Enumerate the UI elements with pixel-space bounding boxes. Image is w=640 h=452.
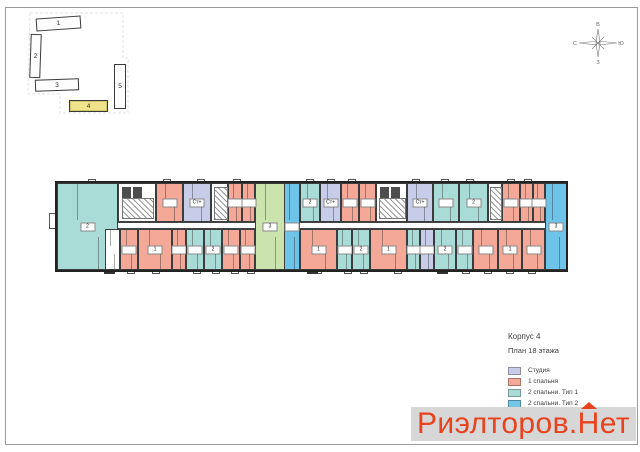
- balcony-tick: [484, 270, 492, 274]
- balcony-tick: [441, 179, 449, 183]
- stair-hatch: [490, 187, 502, 220]
- balcony-tick: [524, 179, 532, 183]
- legend-swatch: [508, 367, 521, 375]
- apartment-unit: [120, 229, 138, 270]
- apartment-unit: [284, 183, 300, 270]
- unit-label: 2: [438, 245, 453, 254]
- apartment-unit: [456, 229, 473, 270]
- balcony-tick: [466, 179, 474, 183]
- unit-label: 2: [303, 198, 318, 207]
- unit-label: 1: [381, 245, 396, 254]
- legend-label: 1 спальня: [528, 378, 558, 385]
- unit-label: [224, 245, 239, 254]
- balcony-tick: [197, 179, 205, 183]
- floor-subtitle: План 18 этажа: [508, 346, 633, 355]
- apartment-unit: [242, 183, 255, 222]
- balcony-tick: [247, 270, 255, 274]
- balcony-tick: [394, 270, 402, 274]
- unit-label: 3: [549, 222, 564, 231]
- legend-item: 2 спальни. Тип 1: [508, 387, 633, 398]
- unit-label: 2: [206, 245, 221, 254]
- balcony-tick: [462, 270, 470, 274]
- apartment-unit: 2: [459, 183, 488, 222]
- page: 12345 В З С Ю 233Ст+2Ст+Ст+21212121 Корп…: [0, 0, 640, 452]
- legend-label: 2 спальни. Тип 1: [528, 389, 578, 396]
- elevator-core: [118, 183, 156, 222]
- legend-swatch: [508, 378, 521, 386]
- elevator-shaft: [122, 187, 131, 198]
- stair-core: [211, 183, 228, 222]
- balcony-tick: [528, 270, 536, 274]
- balcony-tick: [163, 179, 171, 183]
- corridor: [300, 222, 545, 229]
- balcony-tick: [212, 270, 220, 274]
- balcony-tick: [507, 179, 515, 183]
- apartment-unit: [502, 183, 520, 222]
- unit-label: [478, 245, 493, 254]
- unit-label: 1: [503, 245, 518, 254]
- unit-label: 2: [466, 198, 481, 207]
- apartment-unit: [522, 229, 545, 270]
- apartment-unit: [359, 183, 376, 222]
- stair-hatch: [379, 198, 405, 219]
- apartment-unit: 1: [138, 229, 172, 270]
- apartment-unit: [433, 183, 459, 222]
- unit-label: [526, 245, 541, 254]
- apartment-unit: [240, 229, 255, 270]
- stair-hatch: [122, 198, 154, 219]
- legend-item: 1 спальня: [508, 376, 633, 387]
- unit-label: [343, 198, 358, 207]
- apartment-unit: [533, 183, 545, 222]
- corridor: [100, 222, 255, 229]
- apartment-unit: [156, 183, 183, 222]
- legend-label: 2 спальни. Тип 2: [528, 400, 578, 407]
- unit-label: [162, 198, 177, 207]
- watermark-prefix: Риэлторов.: [417, 407, 578, 440]
- balcony: [49, 213, 57, 229]
- unit-label: 2: [354, 245, 369, 254]
- unit-label: [240, 245, 255, 254]
- unit-label: [532, 198, 547, 207]
- apartment-unit: 1: [370, 229, 407, 270]
- elevator-core: [376, 183, 407, 222]
- apartment-unit: Ст+: [407, 183, 433, 222]
- unit-label: [188, 245, 203, 254]
- balcony-tick: [88, 179, 96, 183]
- apartment-unit: 1: [300, 229, 337, 270]
- elevator-shaft: [391, 187, 400, 198]
- balcony-tick: [506, 270, 514, 274]
- unit-label: Ст+: [190, 198, 205, 207]
- apartment-unit: 1: [498, 229, 522, 270]
- apartment-unit: [407, 229, 420, 270]
- unit-label: [439, 198, 454, 207]
- balcony-tick: [344, 270, 352, 274]
- apartment-unit: [420, 229, 434, 270]
- apartment-unit: [228, 183, 242, 222]
- unit-label: [337, 245, 352, 254]
- entrance-stub: [307, 270, 318, 274]
- watermark-suffix: ет: [600, 407, 630, 440]
- unit-label: 2: [80, 222, 95, 231]
- unit-label: [241, 198, 256, 207]
- legend-swatch: [508, 389, 521, 397]
- balcony-tick: [152, 270, 160, 274]
- building-title: Корпус 4: [508, 332, 633, 341]
- stair-core: [488, 183, 502, 222]
- balcony-tick: [412, 179, 420, 183]
- apartment-unit: [337, 229, 352, 270]
- unit-label: 1: [311, 245, 326, 254]
- balcony-tick: [327, 179, 335, 183]
- apartment-unit: [222, 229, 240, 270]
- apartment-unit: 2: [204, 229, 222, 270]
- watermark-house-letter: Н: [578, 409, 600, 439]
- stair-hatch: [214, 187, 228, 220]
- apartment-unit: 3: [255, 183, 285, 270]
- unit-label: [420, 245, 435, 254]
- unit-label: [285, 222, 300, 231]
- unit-label: [360, 198, 375, 207]
- elevator-shaft: [133, 187, 142, 198]
- apartment-unit: Ст+: [183, 183, 211, 222]
- apartment-unit: 2: [434, 229, 456, 270]
- unit-label: 3: [263, 222, 278, 231]
- apartment-unit: [473, 229, 498, 270]
- balcony-tick: [306, 179, 314, 183]
- elevator-shaft: [380, 187, 389, 198]
- watermark-text: Риэлторов.Нет: [417, 409, 630, 439]
- apartment-unit: 3: [545, 183, 567, 270]
- watermark-band: Риэлторов.Нет: [411, 407, 636, 441]
- balcony-tick: [231, 270, 239, 274]
- unit-label: [172, 245, 187, 254]
- apartment-unit: 2: [352, 229, 370, 270]
- unit-label: [122, 245, 137, 254]
- unit-label: [457, 245, 472, 254]
- entrance-stub: [104, 270, 115, 274]
- balcony-tick: [193, 270, 201, 274]
- house-roof-icon: [581, 402, 597, 409]
- apartment-unit: [186, 229, 204, 270]
- apartment-unit: Ст+: [320, 183, 341, 222]
- legend-label: Студия: [528, 367, 550, 374]
- unit-label: 1: [148, 245, 163, 254]
- legend-item: Студия: [508, 365, 633, 376]
- entrance-stub: [437, 270, 448, 274]
- apartment-unit: [105, 229, 120, 270]
- unit-label: Ст+: [323, 198, 338, 207]
- apartment-unit: [341, 183, 359, 222]
- apartment-unit: [172, 229, 186, 270]
- unit-label: Ст+: [413, 198, 428, 207]
- apartment-unit: 2: [300, 183, 320, 222]
- balcony-tick: [360, 270, 368, 274]
- unit-label: [504, 198, 519, 207]
- balcony-tick: [127, 270, 135, 274]
- balcony-tick: [233, 179, 241, 183]
- balcony-tick: [348, 179, 356, 183]
